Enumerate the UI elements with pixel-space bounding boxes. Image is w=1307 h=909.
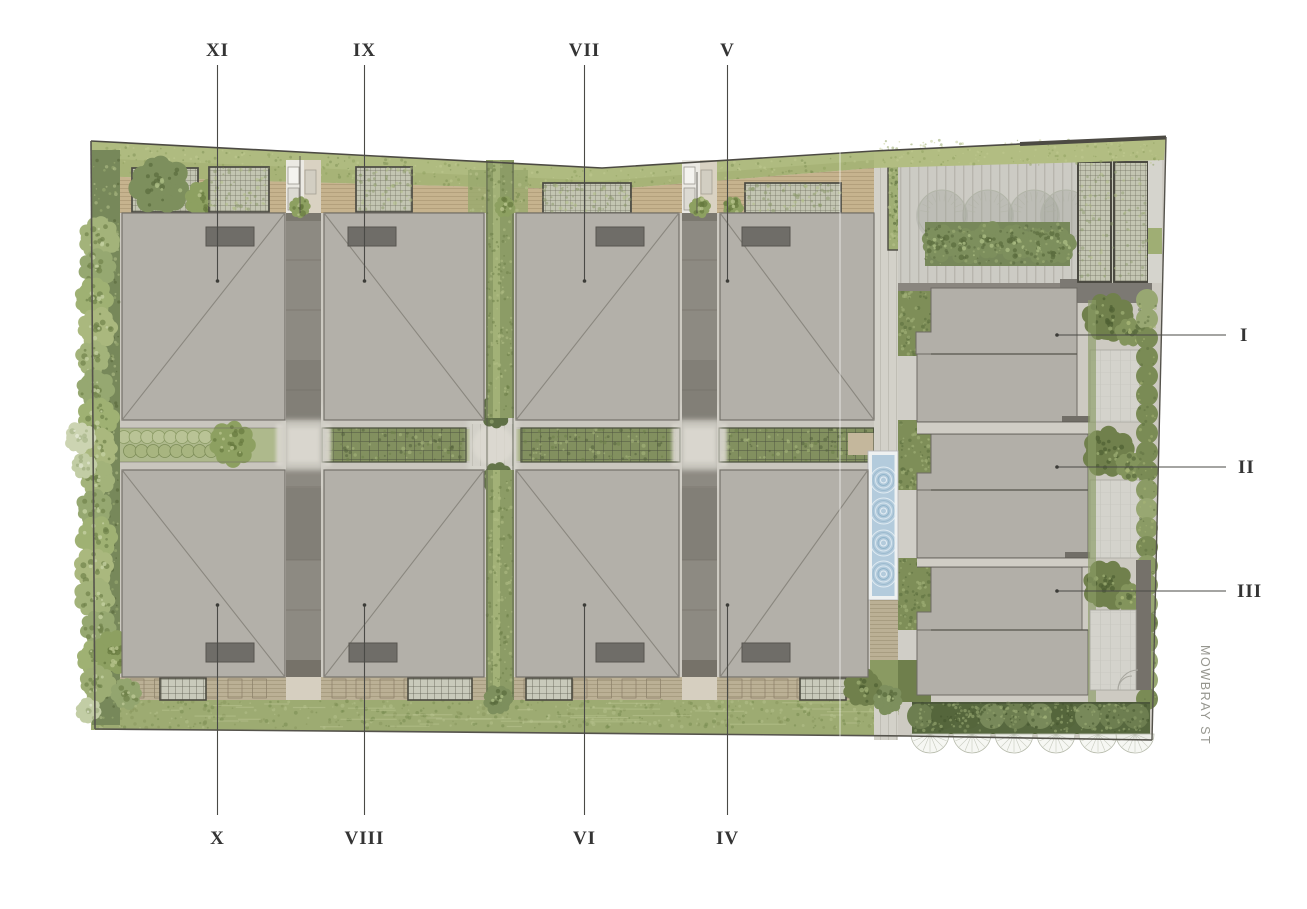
- svg-text:XI: XI: [206, 40, 229, 61]
- svg-text:IX: IX: [353, 40, 376, 61]
- svg-text:X: X: [210, 828, 225, 849]
- svg-text:III: III: [1237, 581, 1262, 602]
- svg-text:V: V: [720, 40, 735, 61]
- svg-text:IV: IV: [716, 828, 739, 849]
- svg-text:I: I: [1240, 325, 1248, 346]
- svg-text:VI: VI: [573, 828, 596, 849]
- svg-text:MOWBRAY ST: MOWBRAY ST: [1198, 645, 1212, 745]
- svg-text:II: II: [1238, 457, 1255, 478]
- svg-text:VIII: VIII: [345, 828, 385, 849]
- svg-text:VII: VII: [569, 40, 601, 61]
